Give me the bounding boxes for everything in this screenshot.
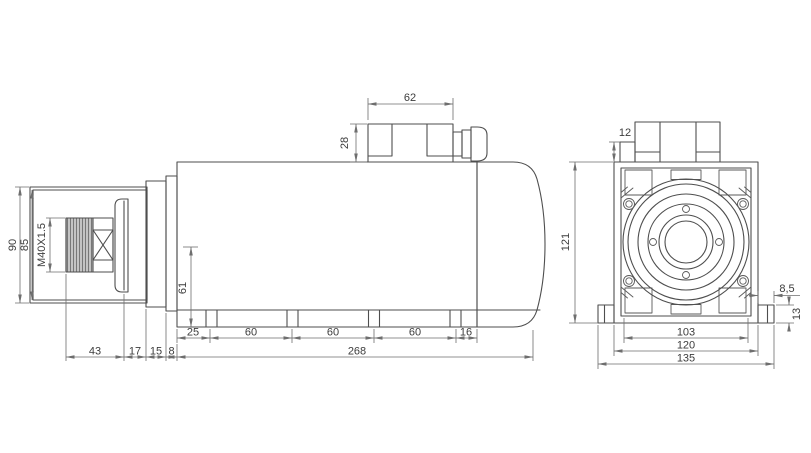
thread-hatch — [66, 218, 93, 272]
dim-label: 135 — [677, 353, 695, 365]
dim-label: 61 — [177, 282, 189, 294]
dim-slot-offset: 25 — [187, 327, 199, 339]
dim-cap-length: 15 — [150, 346, 162, 358]
dim-shaft-length: 43 — [89, 346, 101, 358]
dim-slot-pitch-2: 60 — [327, 327, 339, 339]
dim-label: 62 — [404, 92, 416, 104]
dim-label: 85 — [19, 239, 31, 251]
dim-label: 13 — [791, 308, 803, 320]
dim-label: 121 — [560, 233, 572, 251]
dim-label: 103 — [677, 327, 695, 339]
dim-label: M40X1.5 — [36, 223, 48, 267]
dim-slot-pitch-3: 60 — [409, 327, 421, 339]
dim-slot-end-offset: 16 — [460, 327, 472, 339]
dim-label: 12 — [619, 127, 631, 139]
dim-label: 28 — [339, 137, 351, 149]
dim-label: 120 — [677, 340, 695, 352]
dim-label: 90 — [7, 239, 19, 251]
dim-label: 8,5 — [779, 283, 794, 295]
dim-step-length: 8 — [168, 346, 174, 358]
dim-flange-length: 17 — [129, 346, 141, 358]
drawing-background — [0, 0, 811, 453]
dim-overall-length: 268 — [348, 346, 366, 358]
dim-slot-pitch-1: 60 — [245, 327, 257, 339]
drawing-canvas: 62 28 90 85 M40X1.5 61 — [0, 0, 811, 453]
technical-drawing-svg: 62 28 90 85 M40X1.5 61 — [0, 0, 811, 453]
